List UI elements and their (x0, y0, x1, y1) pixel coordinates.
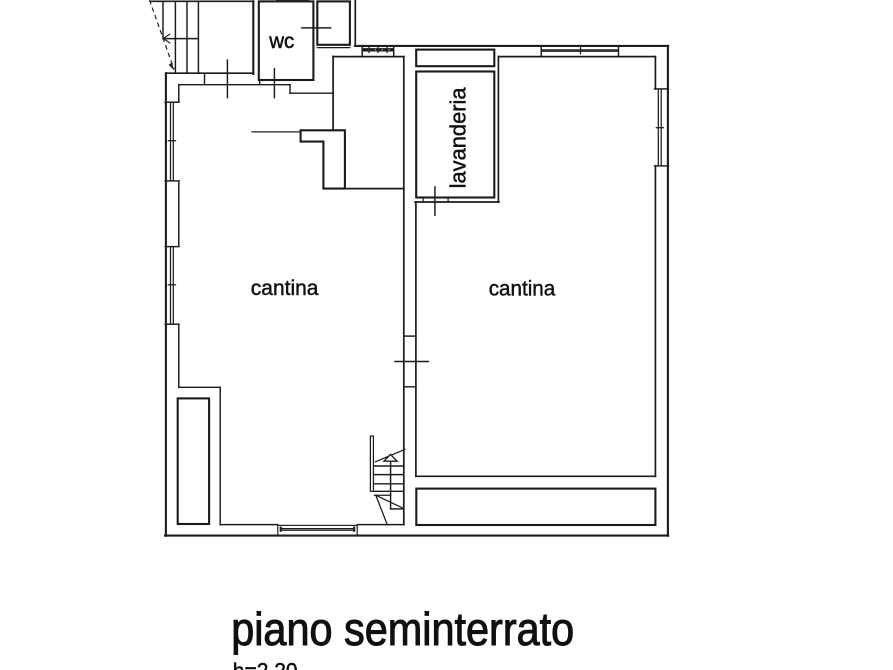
svg-text:wc: wc (268, 29, 294, 53)
svg-text:piano seminterrato: piano seminterrato (231, 603, 574, 655)
svg-text:lavanderia: lavanderia (445, 87, 470, 188)
svg-text:cantina: cantina (489, 276, 556, 300)
svg-text:cantina: cantina (251, 276, 319, 300)
svg-text:h=2.20: h=2.20 (233, 659, 298, 670)
